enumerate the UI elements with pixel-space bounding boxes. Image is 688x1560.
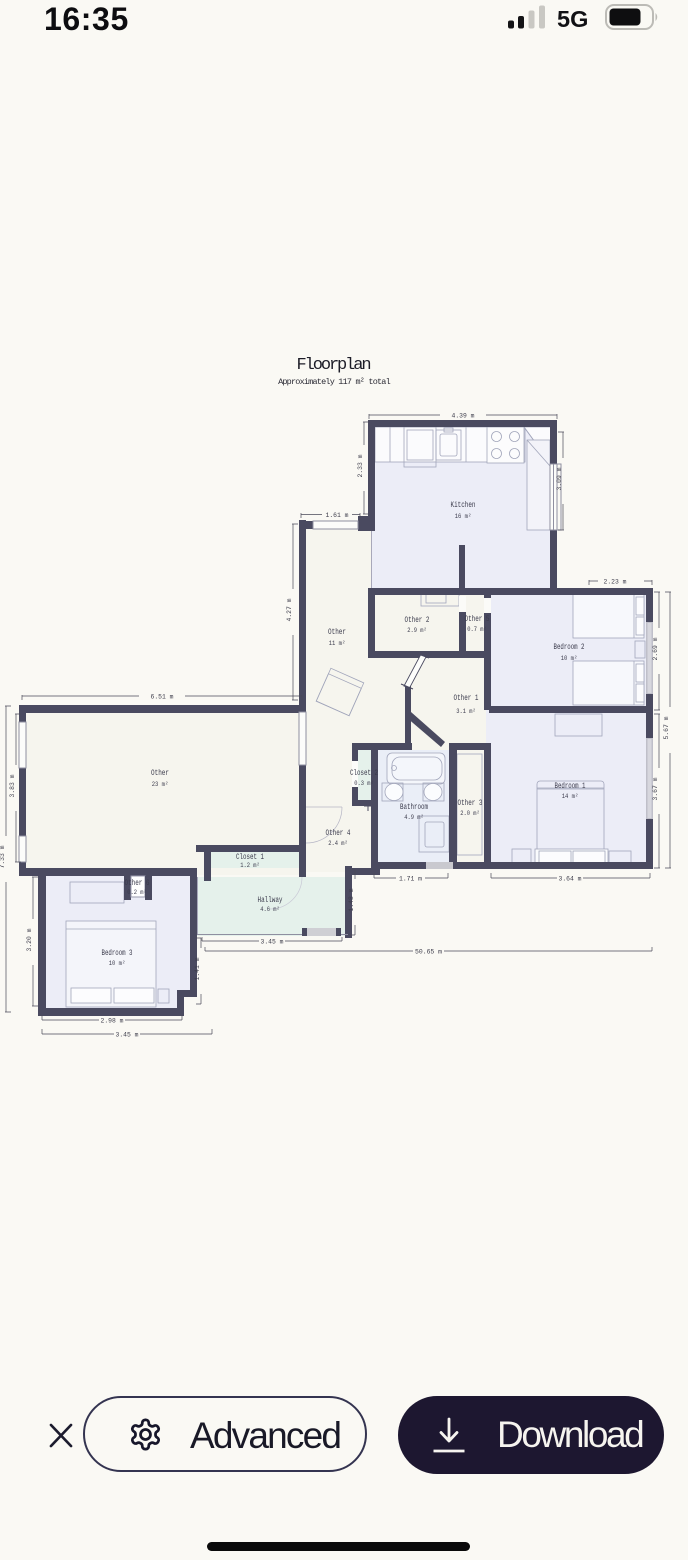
svg-text:3.45 m: 3.45 m (261, 938, 284, 945)
svg-text:10 m²: 10 m² (561, 655, 578, 662)
svg-text:Other 2: Other 2 (405, 616, 430, 625)
svg-text:Other 6: Other 6 (125, 879, 150, 888)
svg-text:3.20 m: 3.20 m (26, 928, 33, 951)
svg-text:Other: Other (328, 628, 346, 637)
svg-text:5.67 m: 5.67 m (663, 716, 670, 739)
svg-text:0.2 m²: 0.2 m² (127, 889, 147, 896)
svg-text:7.33 m: 7.33 m (0, 845, 6, 868)
svg-text:0.7 m²: 0.7 m² (467, 626, 487, 633)
svg-text:4.27 m: 4.27 m (286, 598, 293, 621)
svg-text:Other 1: Other 1 (454, 694, 479, 703)
svg-text:10 m²: 10 m² (109, 960, 126, 967)
svg-text:3.09 m: 3.09 m (556, 467, 563, 490)
svg-text:23 m²: 23 m² (152, 781, 169, 788)
svg-text:14 m²: 14 m² (562, 793, 579, 800)
svg-text:6.51 m: 6.51 m (151, 693, 174, 700)
svg-text:1.2 m²: 1.2 m² (240, 862, 260, 869)
svg-text:3.83 m: 3.83 m (9, 774, 16, 797)
svg-text:16 m²: 16 m² (455, 513, 472, 520)
svg-text:Bedroom 2: Bedroom 2 (554, 643, 585, 652)
svg-text:4.39 m: 4.39 m (452, 412, 475, 419)
svg-text:50.65 m: 50.65 m (415, 948, 442, 955)
svg-text:Other 3: Other 3 (458, 799, 483, 808)
svg-text:2.23 m: 2.23 m (604, 578, 627, 585)
svg-text:2.9 m²: 2.9 m² (407, 627, 427, 634)
svg-text:1.48 m: 1.48 m (348, 888, 355, 911)
svg-text:3.1 m²: 3.1 m² (456, 708, 476, 715)
svg-text:Other 5: Other 5 (465, 615, 490, 624)
svg-text:1.71 m: 1.71 m (399, 875, 422, 882)
svg-text:11 m²: 11 m² (329, 640, 346, 647)
svg-text:Bathroom: Bathroom (400, 803, 428, 812)
svg-text:Kitchen: Kitchen (451, 501, 476, 510)
svg-text:3.45 m: 3.45 m (116, 1031, 139, 1038)
svg-text:2.4 m²: 2.4 m² (328, 840, 348, 847)
svg-text:2.33 m: 2.33 m (357, 454, 364, 477)
svg-text:Closet 2: Closet 2 (350, 769, 378, 778)
svg-text:2.98 m: 2.98 m (101, 1017, 124, 1024)
svg-text:Hallway: Hallway (258, 896, 283, 905)
svg-text:2.0 m²: 2.0 m² (460, 810, 480, 817)
svg-text:3.64 m: 3.64 m (559, 875, 582, 882)
svg-text:1.41 m: 1.41 m (194, 957, 201, 980)
svg-text:4.6 m²: 4.6 m² (260, 906, 280, 913)
svg-text:0.3 m²: 0.3 m² (354, 780, 374, 787)
svg-text:3.67 m: 3.67 m (652, 777, 659, 800)
svg-text:Bedroom 1: Bedroom 1 (555, 782, 586, 791)
svg-text:4.9 m²: 4.9 m² (404, 814, 424, 821)
svg-text:Closet 1: Closet 1 (236, 853, 264, 862)
svg-text:2.69 m: 2.69 m (652, 637, 659, 660)
svg-text:Other 4: Other 4 (326, 829, 351, 838)
svg-text:Other: Other (151, 769, 169, 778)
svg-text:Bedroom 3: Bedroom 3 (102, 949, 133, 958)
svg-text:1.61 m: 1.61 m (326, 512, 349, 519)
